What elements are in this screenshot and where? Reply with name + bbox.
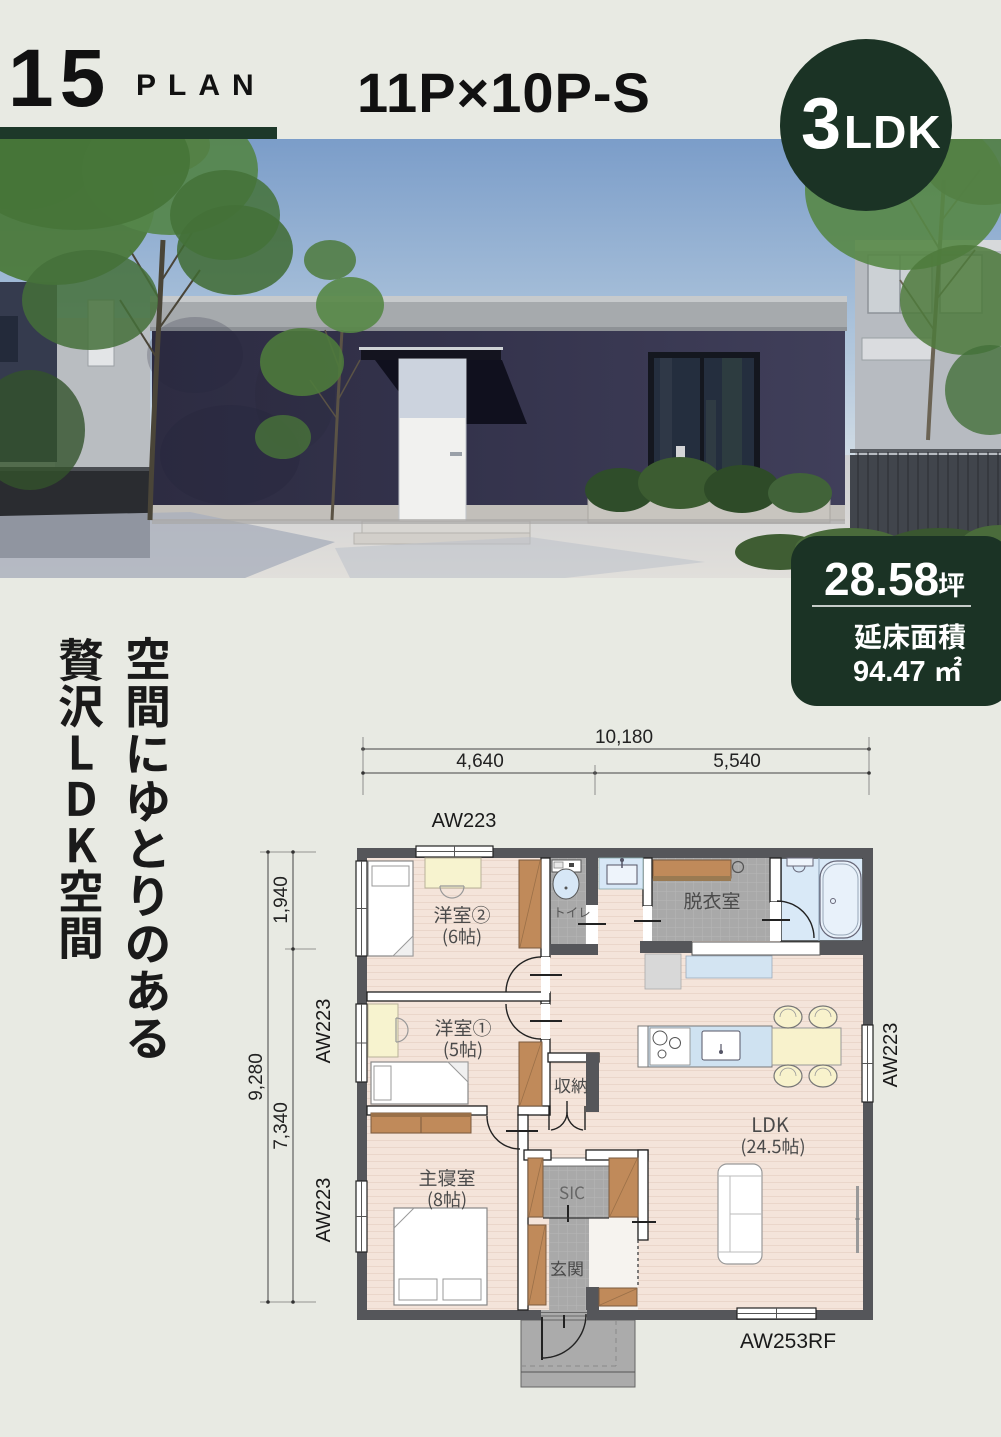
- svg-text:AW223: AW223: [313, 1178, 335, 1243]
- svg-text:5,540: 5,540: [713, 751, 761, 772]
- svg-text:7,340: 7,340: [271, 1102, 292, 1150]
- svg-text:PLAN: PLAN: [136, 69, 266, 102]
- svg-text:AW223: AW223: [313, 999, 335, 1064]
- svg-text:AW223: AW223: [432, 810, 497, 832]
- svg-text:11P×10P-S: 11P×10P-S: [357, 61, 651, 124]
- svg-text:15: 15: [8, 33, 111, 124]
- svg-text:3: 3: [801, 84, 841, 164]
- svg-text:9,280: 9,280: [246, 1053, 267, 1101]
- svg-text:94.47: 94.47: [853, 656, 926, 688]
- svg-text:AW223: AW223: [880, 1023, 902, 1088]
- svg-text:10,180: 10,180: [595, 727, 653, 748]
- svg-text:AW253RF: AW253RF: [740, 1330, 836, 1353]
- svg-text:1,940: 1,940: [271, 876, 292, 924]
- svg-text:LDK: LDK: [844, 106, 942, 158]
- svg-text:4,640: 4,640: [456, 751, 504, 772]
- svg-text:28.58: 28.58: [824, 553, 939, 605]
